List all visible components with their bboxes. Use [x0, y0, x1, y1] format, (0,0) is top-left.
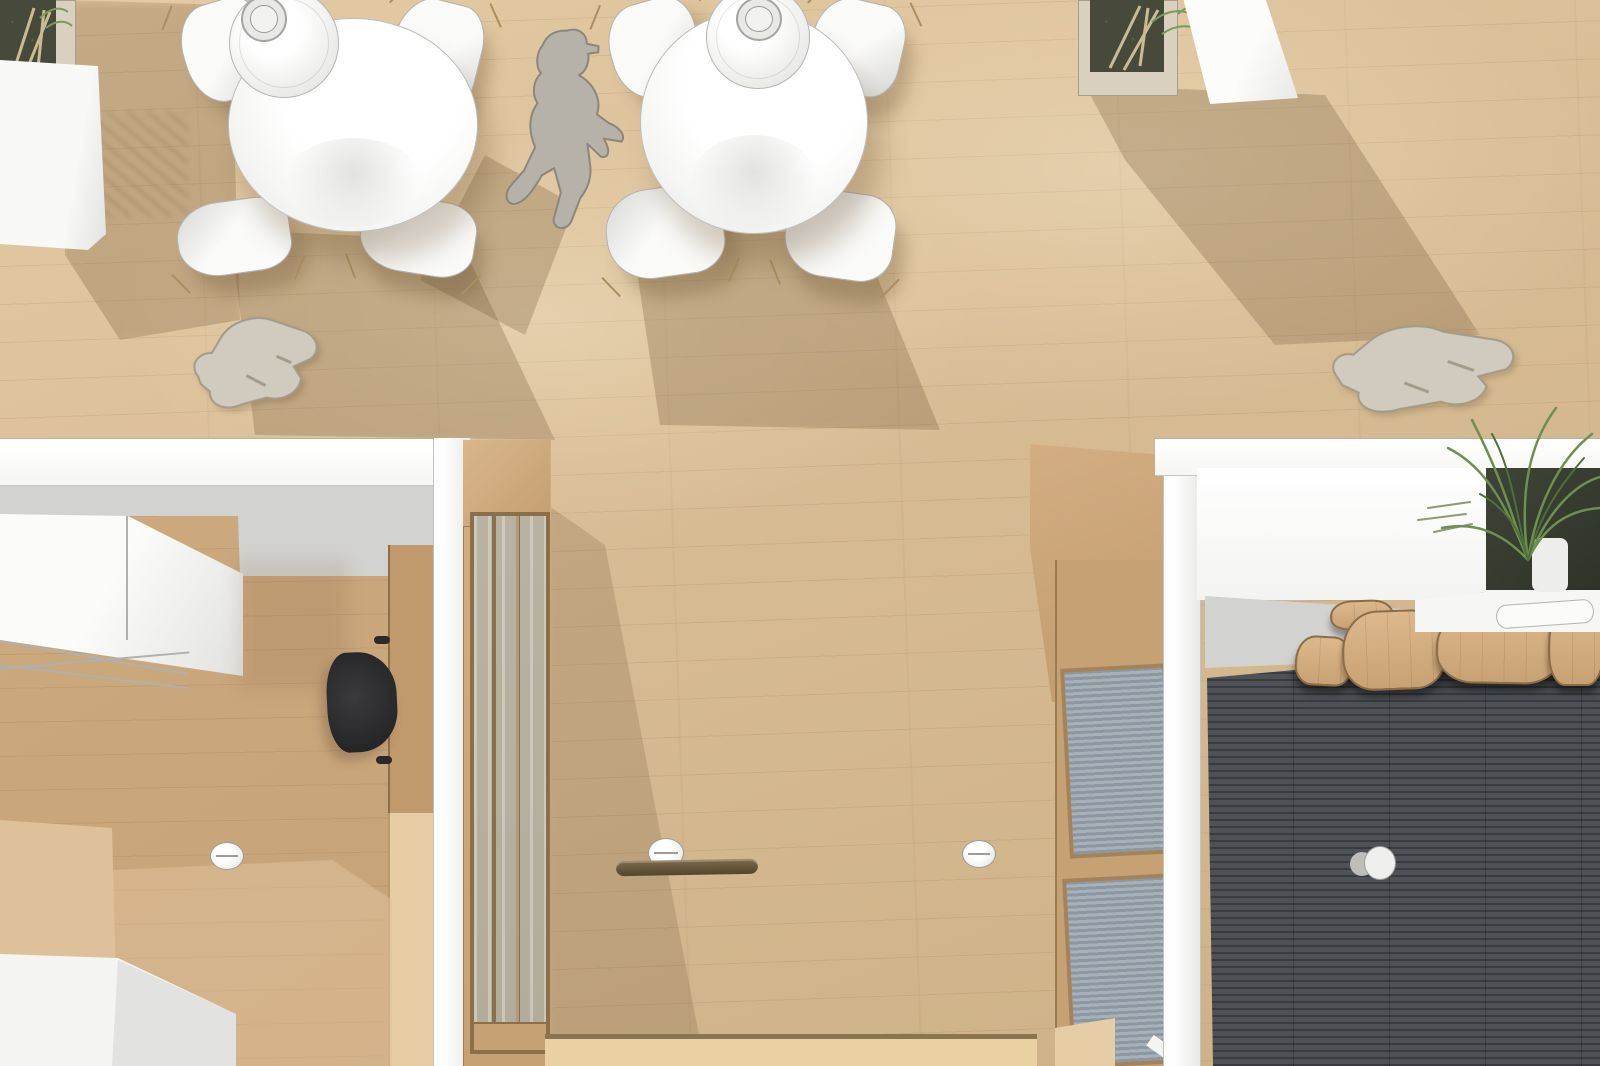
wood-desk-panel: [388, 545, 435, 813]
flattened-person-silhouette: [180, 304, 340, 419]
wood-panel-light: [388, 813, 435, 1066]
hall-light-floor: [545, 1039, 1037, 1066]
floating-shelf: [616, 859, 758, 876]
wall-knob-light: [210, 842, 244, 870]
office-wall-top: [0, 438, 470, 486]
fern-plant: [1408, 390, 1600, 620]
cabinet-edge: [126, 516, 128, 640]
terrace-wall-white: [1163, 450, 1201, 1066]
louver-window: [1060, 663, 1176, 858]
wall-knob-light: [962, 840, 996, 868]
glazed-wood-door: [470, 512, 550, 1054]
chair-arm: [374, 636, 390, 644]
white-bench: [0, 56, 106, 252]
deck-light-fixture: [1364, 846, 1396, 880]
standing-person-silhouette: [486, 21, 657, 244]
chair-arm: [376, 756, 392, 764]
render-canvas: [0, 0, 1600, 1066]
